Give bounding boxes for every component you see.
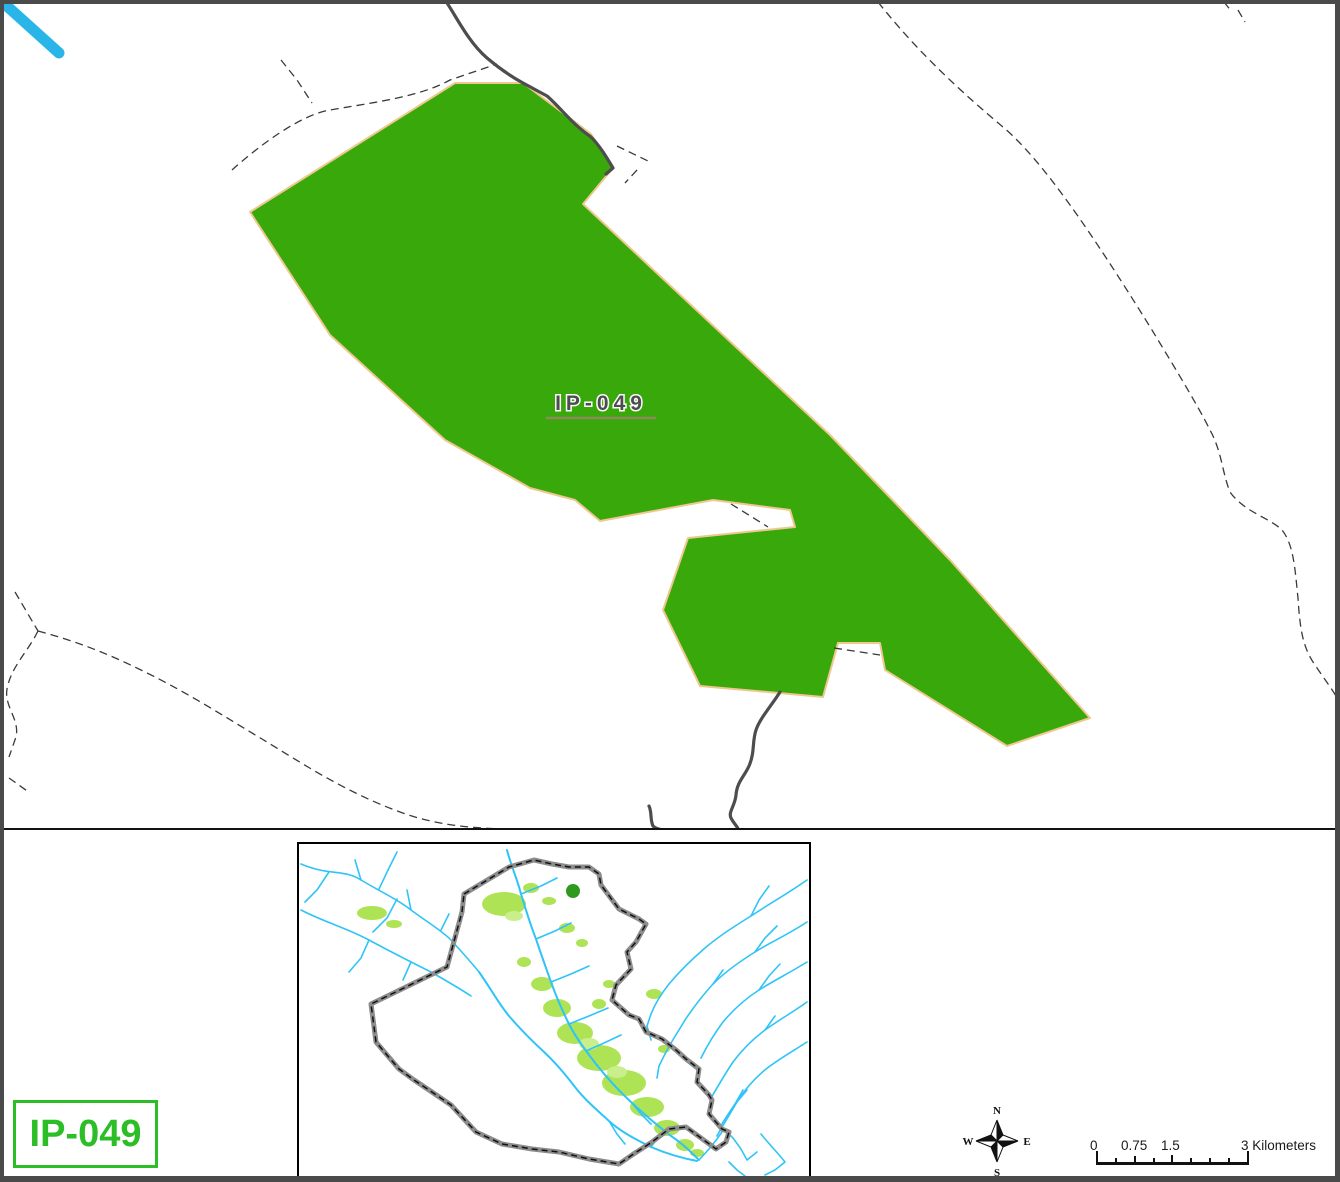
- river-segment: [8, 7, 59, 53]
- compass-south-label: S: [994, 1167, 1000, 1179]
- scale-tick: [1153, 1158, 1155, 1165]
- legend-box: IP-049: [13, 1100, 158, 1168]
- boundary-line-west-lower: [7, 631, 38, 793]
- boundary-line-southwest-sweep: [38, 631, 505, 829]
- scale-tick: [1247, 1151, 1249, 1165]
- scale-tick: [1228, 1158, 1230, 1165]
- scale-tick: [1096, 1151, 1098, 1165]
- compass-west-label: W: [963, 1136, 974, 1148]
- boundary-fragment-notch: [617, 146, 648, 183]
- scale-label-075: 0.75: [1121, 1138, 1147, 1153]
- north-arrow-icon: [976, 1120, 1018, 1162]
- scale-tick: [1190, 1158, 1192, 1165]
- road-bottom-arc: [649, 806, 697, 829]
- scale-label-15: 1.5: [1161, 1138, 1180, 1153]
- scale-tick: [1209, 1158, 1211, 1165]
- compass-east-label: E: [1023, 1136, 1030, 1148]
- overview-inset-map: [297, 842, 811, 1180]
- inset-site-marker: [566, 884, 580, 898]
- legend-label: IP-049: [30, 1113, 142, 1156]
- compass-rose: N S W E: [960, 1102, 1040, 1180]
- boundary-fragment-inlet: [731, 504, 768, 527]
- map-sheet: IP-049 IP-049: [0, 0, 1340, 1182]
- scale-tick: [1134, 1156, 1136, 1165]
- boundary-line-west-upper: [15, 592, 38, 631]
- road-south: [730, 692, 780, 829]
- scale-bar: 0 0.75 1.5 3 Kilometers: [1090, 1138, 1336, 1172]
- parcel-ip049-polygon: [250, 83, 1090, 746]
- scale-tick: [1171, 1155, 1173, 1165]
- boundary-fragment-top-right: [1224, 2, 1245, 22]
- layout-divider: [0, 828, 1340, 830]
- boundary-fragment-south-notch: [834, 648, 880, 655]
- scale-tick: [1115, 1158, 1117, 1165]
- compass-north-label: N: [993, 1105, 1001, 1117]
- scale-label-3km: 3 Kilometers: [1241, 1138, 1316, 1153]
- main-map-canvas: IP-049: [0, 0, 1340, 829]
- parcel-label: IP-049: [555, 392, 647, 415]
